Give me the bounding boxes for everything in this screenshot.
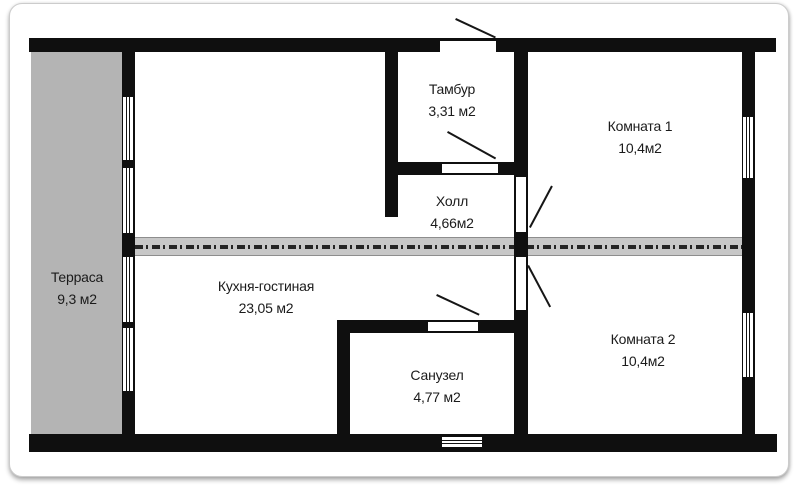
- terrace-window-icon: [123, 328, 133, 391]
- bathroom-door-opening: [428, 322, 478, 331]
- room1-window-icon: [743, 117, 753, 178]
- room-name: Санузел: [410, 364, 463, 386]
- room-label-bathroom: Санузел 4,77 м2: [410, 364, 463, 408]
- floor-plan: Терраса 9,3 м2 Тамбур 3,31 м2 Холл 4,66м…: [0, 0, 800, 492]
- room-area: 10,4м2: [608, 137, 673, 159]
- bathroom-window-icon: [442, 437, 482, 447]
- room-label-room1: Комната 1 10,4м2: [608, 115, 673, 159]
- wall-tambour-west: [385, 52, 398, 217]
- room-name: Тамбур: [428, 78, 475, 100]
- room-area: 4,66м2: [430, 212, 473, 234]
- room-area: 23,05 м2: [218, 297, 314, 319]
- terrace-window-icon: [123, 168, 133, 233]
- terrace-window-icon: [123, 97, 133, 160]
- room-label-hall: Холл 4,66м2: [430, 190, 473, 234]
- room-name: Комната 1: [608, 115, 673, 137]
- terrace-window-icon: [123, 257, 133, 322]
- wall-bathroom-west: [337, 333, 350, 434]
- room-name: Кухня-гостиная: [218, 275, 314, 297]
- room-label-kitchen-living: Кухня-гостиная 23,05 м2: [218, 275, 314, 319]
- wall-center-vertical: [514, 52, 528, 434]
- room-label-tambour: Тамбур 3,31 м2: [428, 78, 475, 122]
- room-label-terrace: Терраса 9,3 м2: [51, 266, 103, 310]
- wall-top: [29, 38, 776, 52]
- room-name: Терраса: [51, 266, 103, 288]
- room-area: 9,3 м2: [51, 288, 103, 310]
- room-area: 3,31 м2: [428, 100, 475, 122]
- entrance-door-opening: [440, 41, 496, 52]
- tambour-hall-door-opening: [442, 164, 498, 173]
- room-label-room2: Комната 2 10,4м2: [611, 328, 676, 372]
- partition-band: [135, 237, 742, 256]
- room2-door-opening: [516, 257, 526, 310]
- room-name: Комната 2: [611, 328, 676, 350]
- room2-window-icon: [743, 313, 753, 377]
- wall-bottom: [29, 434, 777, 452]
- room1-door-opening: [516, 177, 526, 232]
- room-name: Холл: [430, 190, 473, 212]
- room-area: 4,77 м2: [410, 386, 463, 408]
- room-area: 10,4м2: [611, 350, 676, 372]
- terrace-area-fill: [31, 52, 122, 434]
